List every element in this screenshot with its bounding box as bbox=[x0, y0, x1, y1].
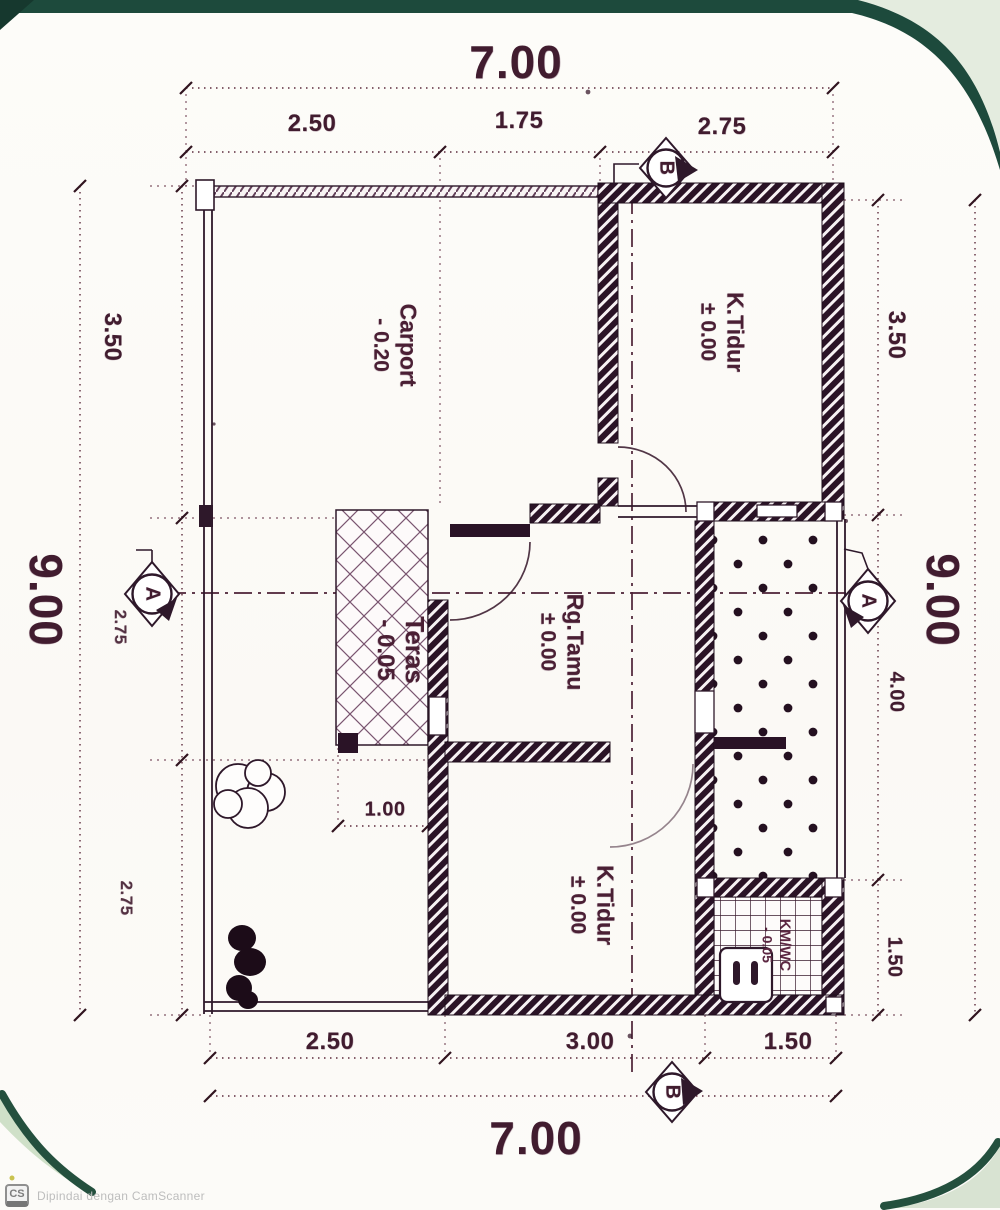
tree-symbol bbox=[214, 760, 285, 828]
dim-top-seg-1: 2.50 bbox=[288, 110, 337, 138]
dim-left-seg-3: 2.75 bbox=[116, 880, 136, 915]
room-level: ± 0.00 bbox=[536, 613, 561, 671]
room-name: Teras bbox=[399, 616, 430, 683]
room-level: ± 0.00 bbox=[566, 876, 591, 934]
section-letter-b-bottom: B bbox=[661, 1085, 684, 1100]
dim-top-seg-3: 2.75 bbox=[698, 113, 747, 141]
dim-top-seg-2: 1.75 bbox=[495, 107, 544, 135]
dim-right-seg-2: 4.00 bbox=[885, 672, 908, 713]
door-arc-bedroom-bottom bbox=[610, 764, 693, 847]
dim-teras-width: 1.00 bbox=[365, 799, 406, 822]
dim-left-seg-2: 2.75 bbox=[110, 609, 130, 644]
dim-bottom-seg-3: 1.50 bbox=[764, 1028, 813, 1056]
camscanner-logo: CS bbox=[5, 1184, 29, 1207]
room-level: - 0.05 bbox=[370, 619, 399, 680]
section-letter-b-top: B bbox=[655, 161, 678, 176]
room-name: K.Tidur bbox=[721, 292, 749, 372]
room-name: K.Tidur bbox=[591, 865, 619, 945]
room-label-carport: Carport - 0.20 bbox=[369, 303, 422, 386]
section-marker-a-right bbox=[841, 549, 895, 633]
room-name: KM/WC bbox=[775, 919, 793, 972]
room-name: Carport bbox=[394, 303, 422, 386]
dim-left-seg-1: 3.50 bbox=[98, 313, 126, 362]
dim-bottom-total: 7.00 bbox=[489, 1111, 583, 1165]
dim-bottom-seg-2: 3.00 bbox=[566, 1028, 615, 1056]
shrub-symbol bbox=[226, 925, 266, 1009]
dim-left-total: 9.00 bbox=[19, 553, 73, 647]
room-name: Rg.Tamu bbox=[561, 594, 589, 691]
dim-top-total: 7.00 bbox=[469, 35, 563, 89]
dim-right-total: 9.00 bbox=[916, 553, 970, 647]
side-yard-floor bbox=[714, 521, 822, 878]
room-level: - 0.05 bbox=[759, 927, 776, 963]
room-level: ± 0.00 bbox=[696, 303, 721, 361]
section-letter-a-left: A bbox=[141, 587, 164, 602]
fence-post-top-left bbox=[196, 180, 214, 210]
dim-right-seg-3: 1.50 bbox=[883, 937, 906, 978]
section-letter-a-right: A bbox=[857, 594, 880, 609]
camscanner-text: Dipindai dengan CamScanner bbox=[37, 1189, 205, 1203]
door-arc-living bbox=[450, 542, 530, 620]
room-label-bathroom: KM/WC - 0.05 bbox=[759, 919, 794, 972]
room-label-bedroom-top: K.Tidur ± 0.00 bbox=[696, 292, 749, 372]
camscanner-watermark: CS Dipindai dengan CamScanner bbox=[5, 1184, 205, 1207]
room-label-bedroom-bottom: K.Tidur ± 0.00 bbox=[566, 865, 619, 945]
dim-right-seg-1: 3.50 bbox=[882, 311, 910, 360]
fence-post-mid-left bbox=[199, 505, 213, 527]
room-level: - 0.20 bbox=[369, 318, 394, 372]
room-label-teras: Teras - 0.05 bbox=[370, 616, 430, 683]
room-label-living: Rg.Tamu ± 0.00 bbox=[536, 594, 589, 691]
door-arc-bedroom-top bbox=[618, 447, 686, 512]
floor-plan-drawing bbox=[0, 0, 1000, 1210]
teras-column bbox=[338, 733, 358, 753]
dim-bottom-seg-1: 2.50 bbox=[306, 1028, 355, 1056]
scanned-page: 7.00 2.50 1.75 2.75 2.50 3.00 1.50 7.00 … bbox=[0, 0, 1000, 1210]
